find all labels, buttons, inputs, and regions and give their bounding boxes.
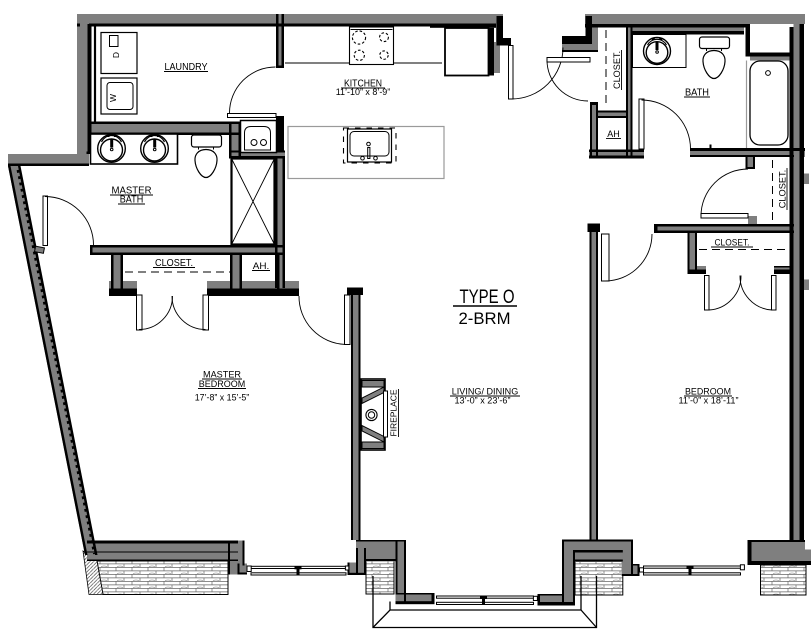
svg-text:FIREPLACE: FIREPLACE xyxy=(389,389,399,436)
svg-text:2-BRM: 2-BRM xyxy=(459,309,511,328)
svg-text:11’-10” x 8’-9”: 11’-10” x 8’-9” xyxy=(336,87,391,97)
svg-text:11’-0” x 18’-11”: 11’-0” x 18’-11” xyxy=(679,396,739,406)
svg-text:W: W xyxy=(108,94,118,102)
svg-text:17’-8” x 15’-5”: 17’-8” x 15’-5” xyxy=(195,393,250,403)
svg-text:D: D xyxy=(111,52,121,58)
svg-text:TYPE O: TYPE O xyxy=(460,287,515,308)
svg-text:13’-0” x 23’-6”: 13’-0” x 23’-6” xyxy=(455,396,511,406)
